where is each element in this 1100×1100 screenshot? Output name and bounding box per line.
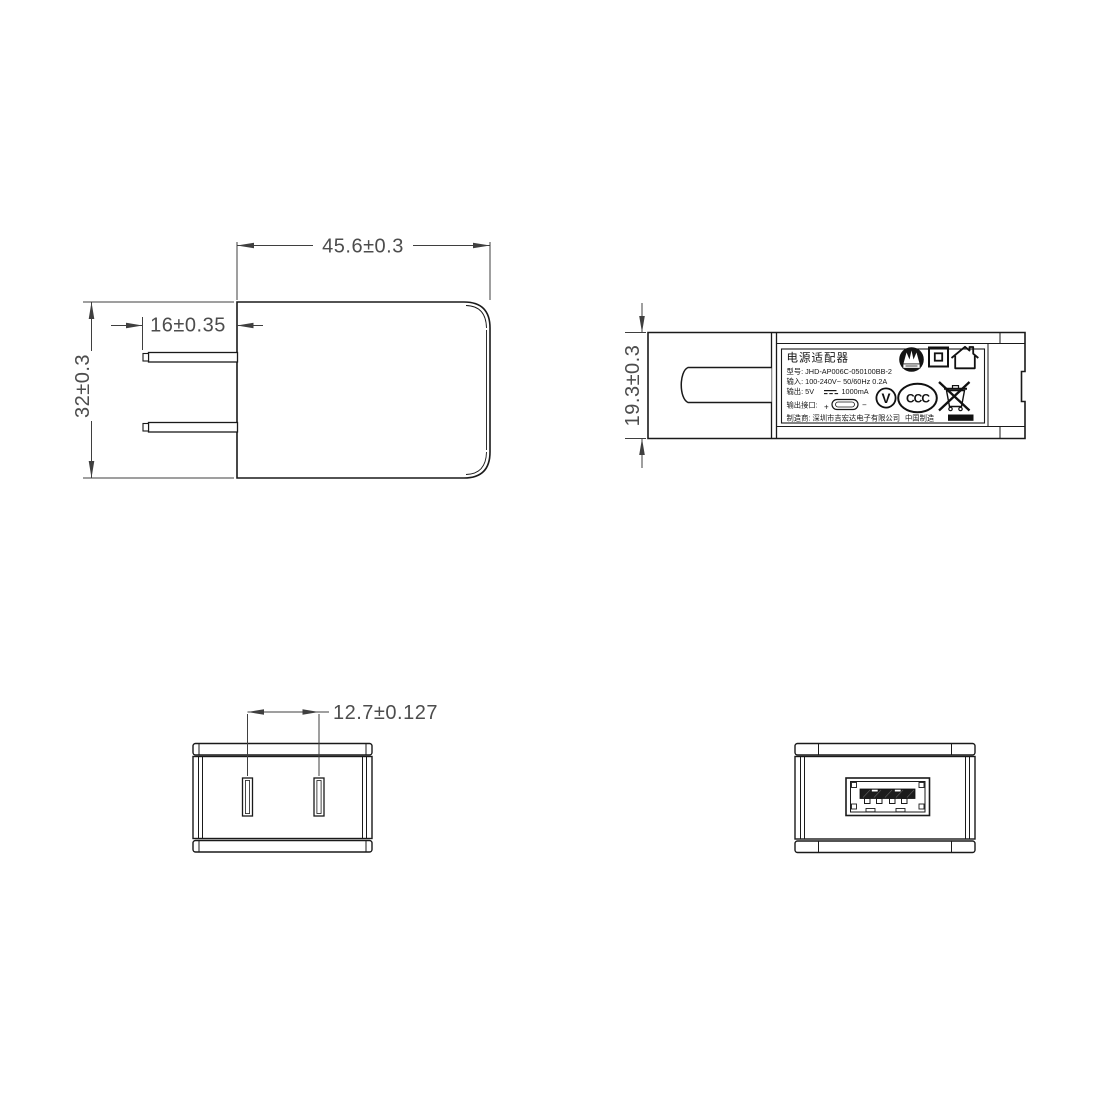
label-input-line: 输入: 100-240V~ 50/60Hz 0.2A — [787, 377, 888, 386]
label-title: 电源适配器 — [787, 351, 850, 365]
weee-date-bar — [948, 415, 974, 421]
usb-tongue — [860, 789, 915, 799]
prong-tip-upper — [143, 354, 149, 362]
cert-mark-icon — [899, 347, 924, 372]
dimension-text-height: 32±0.3 — [72, 354, 94, 418]
arrowhead — [237, 243, 254, 249]
label-output-current: 1000mA — [842, 387, 869, 396]
arrowhead — [473, 243, 490, 249]
prong-tip-lower — [143, 424, 149, 432]
dimension-text-prong-length: 16±0.35 — [150, 315, 226, 337]
arrowhead — [303, 709, 320, 714]
arrowhead — [126, 323, 143, 329]
prong-side-profile — [681, 368, 771, 403]
body-face — [193, 757, 372, 839]
dimension-text-thickness: 19.3±0.3 — [622, 345, 644, 427]
arrowhead — [89, 461, 95, 478]
usb-pin — [865, 799, 871, 804]
arrowhead — [89, 302, 95, 319]
adapter-drawing-svg: 45.6±0.3 32±0.3 16±0.35 — [0, 0, 1100, 1100]
adapter-body-outline — [237, 302, 490, 478]
arrowhead — [639, 439, 645, 456]
usb-tongue-notch — [872, 789, 879, 791]
usb-pin — [902, 799, 908, 804]
dimension-body-width: 45.6±0.3 — [237, 236, 490, 301]
prong-blade-upper — [149, 353, 238, 363]
label-output-line: 输出: 5V — [787, 387, 815, 396]
minus-sign: − — [862, 401, 867, 410]
label-model-line: 型号: JHD-AP006C-050100BB-2 — [787, 367, 892, 376]
usb-face-view-drawing — [795, 744, 975, 853]
technical-drawing-page: 45.6±0.3 32±0.3 16±0.35 — [0, 0, 1100, 1100]
dimension-body-thickness: 19.3±0.3 — [622, 303, 646, 468]
usb-pin — [890, 799, 896, 804]
prong-slot-left — [243, 778, 253, 816]
dimension-text-width: 45.6±0.3 — [322, 236, 404, 258]
label-made-in: 中国制造 — [905, 414, 935, 423]
dimension-text-prong-spacing: 12.7±0.127 — [333, 702, 438, 724]
arrowhead — [639, 316, 645, 333]
svg-text:CCC: CCC — [906, 392, 930, 406]
usb-pin — [877, 799, 883, 804]
arrowhead — [248, 709, 265, 714]
svg-text:V: V — [881, 391, 890, 406]
label-manufacturer-line: 制造商: 深圳市吉宏达电子有限公司 — [787, 414, 901, 423]
usb-tongue-notch — [895, 789, 902, 791]
prong-blade-lower — [149, 423, 238, 433]
top-cap-band — [795, 744, 975, 756]
prong-slot-right — [314, 778, 324, 816]
label-port-line: 输出接口: — [787, 401, 818, 410]
plug-face-view-drawing — [193, 744, 372, 853]
bottom-cap-band — [193, 841, 372, 853]
top-cap-band — [193, 744, 372, 756]
usb-a-port — [846, 778, 930, 816]
plus-sign: + — [824, 403, 829, 412]
bottom-cap-band — [795, 841, 975, 853]
